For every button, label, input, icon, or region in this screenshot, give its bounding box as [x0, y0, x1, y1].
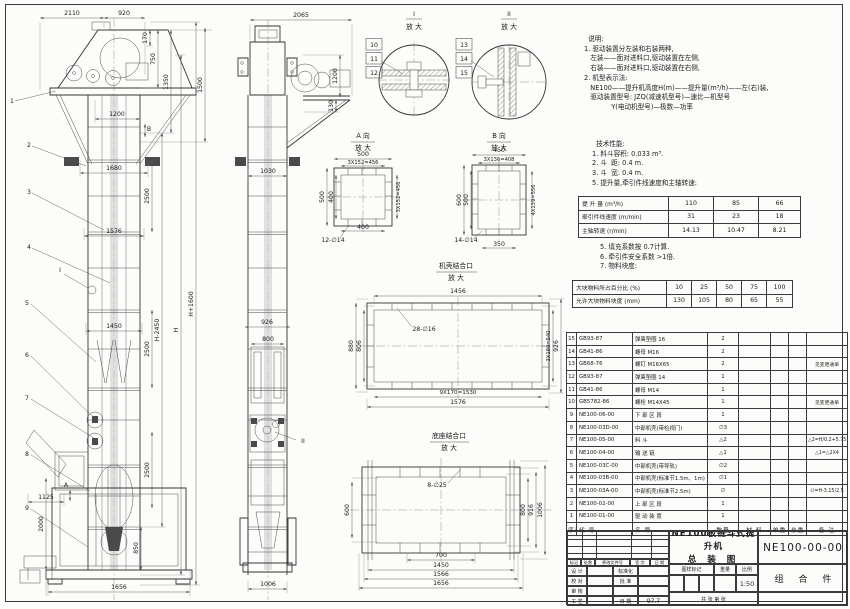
dim-label: 14-∅14: [454, 237, 477, 244]
dim-label: 13: [460, 42, 468, 49]
table-cell: [789, 421, 807, 434]
table-cell: 55: [767, 294, 793, 308]
table-cell: 80: [717, 294, 742, 308]
table-cell: 弹簧垫圈 16: [633, 333, 708, 346]
table-row: 10GB5782-86螺栓 M14X451见变更通单: [567, 396, 848, 409]
table-row: 7NE100-05-00料 斗△2△2=H/0.2+5.75: [567, 434, 848, 447]
table-row: 允许大块物料块度 (mm)130105806555: [573, 294, 793, 308]
text-line: 1. 驱动装置分左装和右装两种,: [584, 45, 768, 55]
dim-label: 880: [348, 340, 355, 352]
table-cell: [807, 497, 848, 510]
dim-label: 12-∅14: [321, 237, 344, 244]
table-cell: 允许大块物料块度 (mm): [573, 294, 667, 308]
table-cell: [739, 421, 771, 434]
table-cell: 1: [708, 510, 739, 523]
table-cell: [771, 510, 789, 523]
table-cell: [739, 333, 771, 346]
tech-spec-block-b: 5. 填充系数按 0.7计算.6. 牵引件安全系数 >1倍.7. 物料块度:: [600, 243, 675, 272]
table-cell: 8: [567, 421, 577, 434]
chain-strip-side: [264, 95, 272, 570]
table-cell: 10.47: [714, 224, 759, 238]
sig-cell: [587, 566, 613, 576]
dim-label: 4X139=556: [531, 184, 537, 215]
dim-label: 2000: [38, 516, 45, 532]
dim-label: 3X180=540: [546, 330, 552, 361]
dim-label: 5: [25, 300, 29, 307]
dim-label: 3X152=456: [396, 181, 402, 212]
dim-label: 920: [118, 10, 130, 17]
table-cell: [771, 333, 789, 346]
dim-label: 450: [493, 147, 505, 154]
dim-label: 8-∅25: [427, 482, 446, 489]
dim-label: 2500: [144, 462, 151, 478]
drawing-number: NE100-00-00: [758, 531, 848, 564]
table-cell: 25: [692, 281, 717, 295]
dim-label: 8: [25, 451, 29, 458]
dim-label: 806: [356, 340, 363, 352]
table-cell: [789, 396, 807, 409]
table-cell: △1: [708, 447, 739, 460]
dim-label: 3X152=456: [347, 160, 378, 166]
table-cell: [739, 383, 771, 396]
text-line: 5. 提升量,牵引件线速度和主轴转速:: [592, 179, 697, 189]
table-cell: [789, 333, 807, 346]
dim-label: 1500: [197, 77, 204, 93]
text-line: 7. 物料块度:: [600, 262, 675, 272]
dim-label: 926: [261, 319, 273, 326]
table-cell: NE100-04-00: [577, 447, 633, 460]
table-cell: [789, 447, 807, 460]
table-cell: 弹簧垫圈 14: [633, 371, 708, 384]
table-cell: 7: [567, 434, 577, 447]
table-cell: 8.21: [759, 224, 801, 238]
label-date: 日 期: [613, 596, 638, 606]
dim-label: 800: [262, 336, 274, 343]
table-cell: 中部机壳(带检视门): [633, 421, 708, 434]
table-cell: 中部机壳(带导轨): [633, 459, 708, 472]
table-cell: 2: [708, 345, 739, 358]
table-row: 提 升 量 (m³/h)1108566: [579, 197, 801, 211]
table-cell: 1: [708, 396, 739, 409]
dim-label: 1576: [106, 228, 122, 235]
table-cell: [807, 371, 848, 384]
text-line: 3. 斗 宽: 0.4 m.: [592, 169, 697, 179]
table-cell: [739, 497, 771, 510]
part-type: 组 合 件: [758, 564, 848, 592]
table-cell: NE100-03B-00: [577, 472, 633, 485]
table-cell: 主轴转速 (r/min): [579, 224, 669, 238]
dim-label: II: [507, 11, 511, 18]
table-cell: [807, 510, 848, 523]
table-cell: 牵引件线速度 (m/min): [579, 210, 669, 224]
dim-label: 700: [435, 552, 447, 559]
table-cell: GB5782-86: [577, 396, 633, 409]
dim-label: 2110: [64, 10, 80, 17]
table-cell: NE100-03A-00: [577, 485, 633, 498]
dim-label: H+1600: [188, 291, 195, 317]
table-cell: [807, 345, 848, 358]
table-row: 14GB41-86螺母 M162: [567, 345, 848, 358]
table-row: 3NE100-03A-00中部机壳(标准节2.5m)∅∅=H-3.15/2.5: [567, 485, 848, 498]
table-cell: [789, 497, 807, 510]
table-row: 15GB93-87弹簧垫圈 162: [567, 333, 848, 346]
sig-cell: [613, 586, 638, 596]
table-cell: [739, 409, 771, 422]
dim-label: H: [173, 327, 180, 332]
table-cell: [789, 472, 807, 485]
dim-label: 9: [25, 505, 29, 512]
dim-label: 1450: [106, 323, 122, 330]
dim-label: 400: [328, 191, 335, 203]
dim-label: 2: [27, 142, 31, 149]
table-cell: GB41-86: [577, 383, 633, 396]
table-cell: 1: [708, 409, 739, 422]
table-cell: 14.13: [669, 224, 714, 238]
table-cell: [807, 421, 848, 434]
table-cell: △2=H/0.2+5.75: [807, 434, 848, 447]
table-cell: [739, 459, 771, 472]
sig-cell: [638, 586, 669, 596]
table-row: 1NE100-01-00驱 动 装 置1: [567, 510, 848, 523]
table-cell: 5: [567, 459, 577, 472]
table-cell: 13: [567, 358, 577, 371]
table-cell: [771, 434, 789, 447]
table-cell: [739, 485, 771, 498]
drawing-title-line2: 总 装 图: [688, 554, 740, 564]
dim-label: 放 大: [501, 22, 517, 31]
dim-label: B 向: [492, 131, 506, 140]
dim-label: H-2450: [154, 319, 161, 342]
dim-label: II: [301, 438, 305, 445]
detail-linework: [20, 19, 549, 583]
rev-header-sign: 签 字: [630, 559, 650, 566]
table-cell: [739, 345, 771, 358]
table-cell: ∅2: [708, 459, 739, 472]
table-cell: [807, 472, 848, 485]
table-cell: 提 升 量 (m³/h): [579, 197, 669, 211]
stamp-header-scale: 比例: [736, 564, 758, 575]
dim-label: 放 大: [441, 443, 457, 452]
table-cell: GB93-87: [577, 371, 633, 384]
text-line: 技术性能:: [592, 140, 697, 150]
stamp-cell: [669, 575, 684, 592]
table-cell: 大块物料所占百分比 (%): [573, 281, 667, 295]
table-cell: 2: [567, 497, 577, 510]
table-cell: 1: [708, 383, 739, 396]
dim-label: 1656: [111, 584, 127, 591]
table-cell: 料 斗: [633, 434, 708, 447]
table-cell: [771, 472, 789, 485]
scale-value: 1:50: [736, 575, 758, 592]
table-cell: [739, 358, 771, 371]
sig-cell: [587, 596, 613, 606]
table-cell: [771, 497, 789, 510]
table-cell: [807, 333, 848, 346]
table-cell: 输 送 链: [633, 447, 708, 460]
dim-label: 1006: [537, 502, 544, 518]
table-cell: 螺栓 M14X45: [633, 396, 708, 409]
dim-label: 2065: [293, 12, 309, 19]
dim-label: 12: [370, 70, 378, 77]
table-cell: GB93-87: [577, 333, 633, 346]
dim-label: 600: [344, 504, 351, 516]
table-cell: ∅: [708, 485, 739, 498]
table-cell: [789, 510, 807, 523]
dim-label: 500: [319, 191, 326, 203]
table-cell: [771, 485, 789, 498]
table-cell: 12: [567, 371, 577, 384]
table-cell: 31: [669, 210, 714, 224]
table-cell: [739, 447, 771, 460]
table-cell: [771, 345, 789, 358]
role-check: 校 对: [567, 576, 587, 586]
stamp-cell: [699, 575, 714, 592]
dim-label: 1656: [433, 580, 449, 587]
table-cell: GB41-86: [577, 345, 633, 358]
title-block: 标记 处数 更改文件号 签 字 日 期 设 计 标准化 校 对 批 准 审 核 …: [566, 530, 847, 605]
drawing-title-line1: NE100板链斗式提升机: [670, 531, 757, 554]
table-cell: [739, 396, 771, 409]
table-row: 13GB68-76螺钉 M16X652见变更通单: [567, 358, 848, 371]
table-cell: [807, 459, 848, 472]
table-cell: 中部机壳(标准节2.5m): [633, 485, 708, 498]
dim-label: 1200: [109, 111, 125, 118]
dim-label: 1450: [433, 562, 449, 569]
table-cell: 6: [567, 447, 577, 460]
dim-label: I: [59, 267, 61, 274]
text-line: 2. 机型表示法:: [584, 74, 768, 84]
table-cell: [771, 459, 789, 472]
table-cell: [789, 459, 807, 472]
table-cell: ∅3: [708, 421, 739, 434]
table-cell: △2: [708, 434, 739, 447]
revision-rows: [567, 531, 669, 559]
leader-lines: [15, 61, 494, 547]
drawing-title: NE100板链斗式提升机 总 装 图: [669, 531, 758, 564]
rev-header-count: 处数: [581, 559, 595, 566]
table-cell: 下 部 区 段: [633, 409, 708, 422]
rev-header-doc: 更改文件号: [595, 559, 630, 566]
dim-label: 130: [328, 100, 335, 112]
table-cell: 2: [708, 333, 739, 346]
table-cell: [771, 371, 789, 384]
dim-label: 600: [456, 194, 463, 206]
rev-header-mark: 标记: [567, 559, 581, 566]
dim-label: B: [147, 126, 151, 133]
dim-label: 1200: [332, 68, 339, 84]
weight-cell: [714, 575, 736, 592]
notes-block: 说明:1. 驱动装置分左装和右装两种, 左装——面对进料口,驱动装置在左侧, 右…: [584, 35, 768, 113]
table-cell: 螺母 M14: [633, 383, 708, 396]
table-cell: [771, 358, 789, 371]
table-cell: [771, 447, 789, 460]
table-cell: 50: [717, 281, 742, 295]
dim-label: 1566: [433, 571, 449, 578]
role-approve: 批 准: [613, 576, 638, 586]
main-outlines: [46, 26, 549, 584]
table-row: 6NE100-04-00输 送 链△1△1=△2X4: [567, 447, 848, 460]
table-cell: 15: [567, 333, 577, 346]
bill-of-materials: 15GB93-87弹簧垫圈 16214GB41-86螺母 M16213GB68-…: [566, 332, 848, 536]
table-cell: 110: [669, 197, 714, 211]
table-cell: 10: [567, 396, 577, 409]
table-cell: [789, 434, 807, 447]
table-cell: 85: [714, 197, 759, 211]
stamp-header-weight: 重量: [714, 564, 736, 575]
dim-label: 800: [520, 504, 527, 516]
table-cell: 14: [567, 345, 577, 358]
table-row: 大块物料所占百分比 (%)10255075100: [573, 281, 793, 295]
table-row: 11GB41-86螺母 M141: [567, 383, 848, 396]
dim-label: 机壳结合口: [439, 261, 473, 270]
table-cell: [789, 371, 807, 384]
table-cell: [739, 434, 771, 447]
table-cell: [807, 383, 848, 396]
role-review: 审 核: [567, 586, 587, 596]
table-row: 主轴转速 (r/min)14.1310.478.21: [579, 224, 801, 238]
table-cell: 1: [708, 497, 739, 510]
table-cell: [739, 371, 771, 384]
dimension-labels: 2110920170750135015001200168025001576250…: [10, 10, 560, 591]
text-line: 说明:: [584, 35, 768, 45]
table-cell: NE100-06-00: [577, 409, 633, 422]
table-cell: 螺母 M16: [633, 345, 708, 358]
table-cell: 中部机壳(标准节1.5m、1m): [633, 472, 708, 485]
dim-label: I: [413, 11, 415, 18]
table-cell: 1: [708, 371, 739, 384]
text-line: Y(电动机型号)—极数—功率: [584, 103, 768, 113]
table-row: 5NE100-03C-00中部机壳(带导轨)∅2: [567, 459, 848, 472]
dim-label: 850: [133, 542, 140, 554]
dim-label: 11: [370, 56, 378, 63]
table-cell: △1=△2X4: [807, 447, 848, 460]
table-cell: 130: [667, 294, 692, 308]
table-cell: [771, 383, 789, 396]
performance-table: 提 升 量 (m³/h)1108566牵引件线速度 (m/min)312318主…: [578, 196, 801, 238]
dim-label: 放 大: [406, 22, 422, 31]
table-cell: [789, 345, 807, 358]
text-line: 1. 料斗容积: 0.033 m³.: [592, 150, 697, 160]
table-cell: 3: [567, 485, 577, 498]
date-value: 97.7: [638, 596, 669, 606]
stamp-cell: [684, 575, 699, 592]
table-cell: [807, 409, 848, 422]
centerlines: [114, 18, 556, 600]
role-process: 工 艺: [567, 596, 587, 606]
table-cell: [789, 383, 807, 396]
table-row: 2NE100-02-00上 部 区 段1: [567, 497, 848, 510]
dim-label: 底座结合口: [432, 431, 466, 440]
table-cell: 10: [667, 281, 692, 295]
dim-label: 1: [10, 98, 14, 105]
sig-cell: [638, 566, 669, 576]
table-cell: NE100-03D-00: [577, 421, 633, 434]
table-cell: [789, 409, 807, 422]
dim-label: 1125: [38, 494, 54, 501]
table-cell: [771, 409, 789, 422]
text-line: 2. 斗 距: 0.4 m.: [592, 159, 697, 169]
dim-label: A 向: [356, 131, 370, 140]
table-cell: [789, 358, 807, 371]
dim-label: 1350: [163, 74, 170, 90]
table-cell: [789, 485, 807, 498]
sig-cell: [638, 576, 669, 586]
empty-cell: [758, 592, 848, 606]
dim-label: 28-∅16: [412, 326, 435, 333]
rev-header-date: 日 期: [650, 559, 669, 566]
text-line: 驱动装置型号: JZQ(减速机型号)—速比—机型号: [584, 93, 768, 103]
table-row: 8NE100-03D-00中部机壳(带检视门)∅3: [567, 421, 848, 434]
text-line: 左装——面对进料口,驱动装置在左侧,: [584, 54, 768, 64]
dim-label: 3: [27, 189, 31, 196]
table-cell: NE100-01-00: [577, 510, 633, 523]
dim-label: 916: [528, 504, 535, 516]
role-design: 设 计: [567, 566, 587, 576]
dim-label: 7: [25, 395, 29, 402]
table-cell: 2: [708, 358, 739, 371]
dim-label: 1680: [106, 165, 122, 172]
table-cell: 见变更通单: [807, 358, 848, 371]
table-cell: 4: [567, 472, 577, 485]
table-cell: [771, 396, 789, 409]
dim-label: 500: [357, 151, 369, 158]
dim-label: 14: [460, 56, 468, 63]
table-cell: 11: [567, 383, 577, 396]
dim-label: 1456: [450, 288, 466, 295]
dim-label: 2500: [144, 341, 151, 357]
dim-label: 15: [460, 70, 468, 77]
table-cell: 1: [567, 510, 577, 523]
table-cell: [739, 472, 771, 485]
table-cell: 9: [567, 409, 577, 422]
table-cell: [771, 421, 789, 434]
tech-spec-block-a: 技术性能:1. 料斗容积: 0.033 m³.2. 斗 距: 0.4 m.3. …: [592, 140, 697, 189]
dim-label: 1006: [260, 581, 276, 588]
table-cell: [739, 510, 771, 523]
table-cell: 上 部 区 段: [633, 497, 708, 510]
table-cell: 75: [742, 281, 767, 295]
text-line: NE100——提升机高度H(m)——提升量(m³/h)——左(右)装,: [584, 84, 768, 94]
sig-cell: [587, 586, 613, 596]
table-row: 4NE100-03B-00中部机壳(标准节1.5m、1m)∅1: [567, 472, 848, 485]
table-cell: NE100-05-00: [577, 434, 633, 447]
dim-label: 6: [25, 352, 29, 359]
dim-label: 1030: [260, 168, 276, 175]
dim-label: 放 大: [448, 273, 464, 282]
dim-label: 350: [493, 241, 505, 248]
drawing-sheet: 2110920170750135015001200168025001576250…: [0, 0, 850, 609]
table-cell: 23: [714, 210, 759, 224]
table-row: 9NE100-06-00下 部 区 段1: [567, 409, 848, 422]
text-line: 右装——面对进料口,驱动装置在右侧,: [584, 64, 768, 74]
table-cell: 65: [742, 294, 767, 308]
dim-label: 400: [357, 224, 369, 231]
dim-label: 4: [27, 244, 31, 251]
table-row: 牵引件线速度 (m/min)312318: [579, 210, 801, 224]
table-cell: ∅1: [708, 472, 739, 485]
dim-label: 9X170=1530: [440, 390, 477, 396]
dim-label: 3X136=408: [483, 157, 514, 163]
role-standardization: 标准化: [613, 566, 638, 576]
lump-size-table: 大块物料所占百分比 (%)10255075100允许大块物料块度 (mm)130…: [572, 280, 793, 308]
text-line: 6. 牵引件安全系数 >1倍.: [600, 253, 675, 263]
sig-cell: [587, 576, 613, 586]
table-cell: NE100-02-00: [577, 497, 633, 510]
table-cell: 见变更通单: [807, 396, 848, 409]
text-line: 5. 填充系数按 0.7计算.: [600, 243, 675, 253]
table-cell: 18: [759, 210, 801, 224]
table-cell: 螺钉 M16X65: [633, 358, 708, 371]
